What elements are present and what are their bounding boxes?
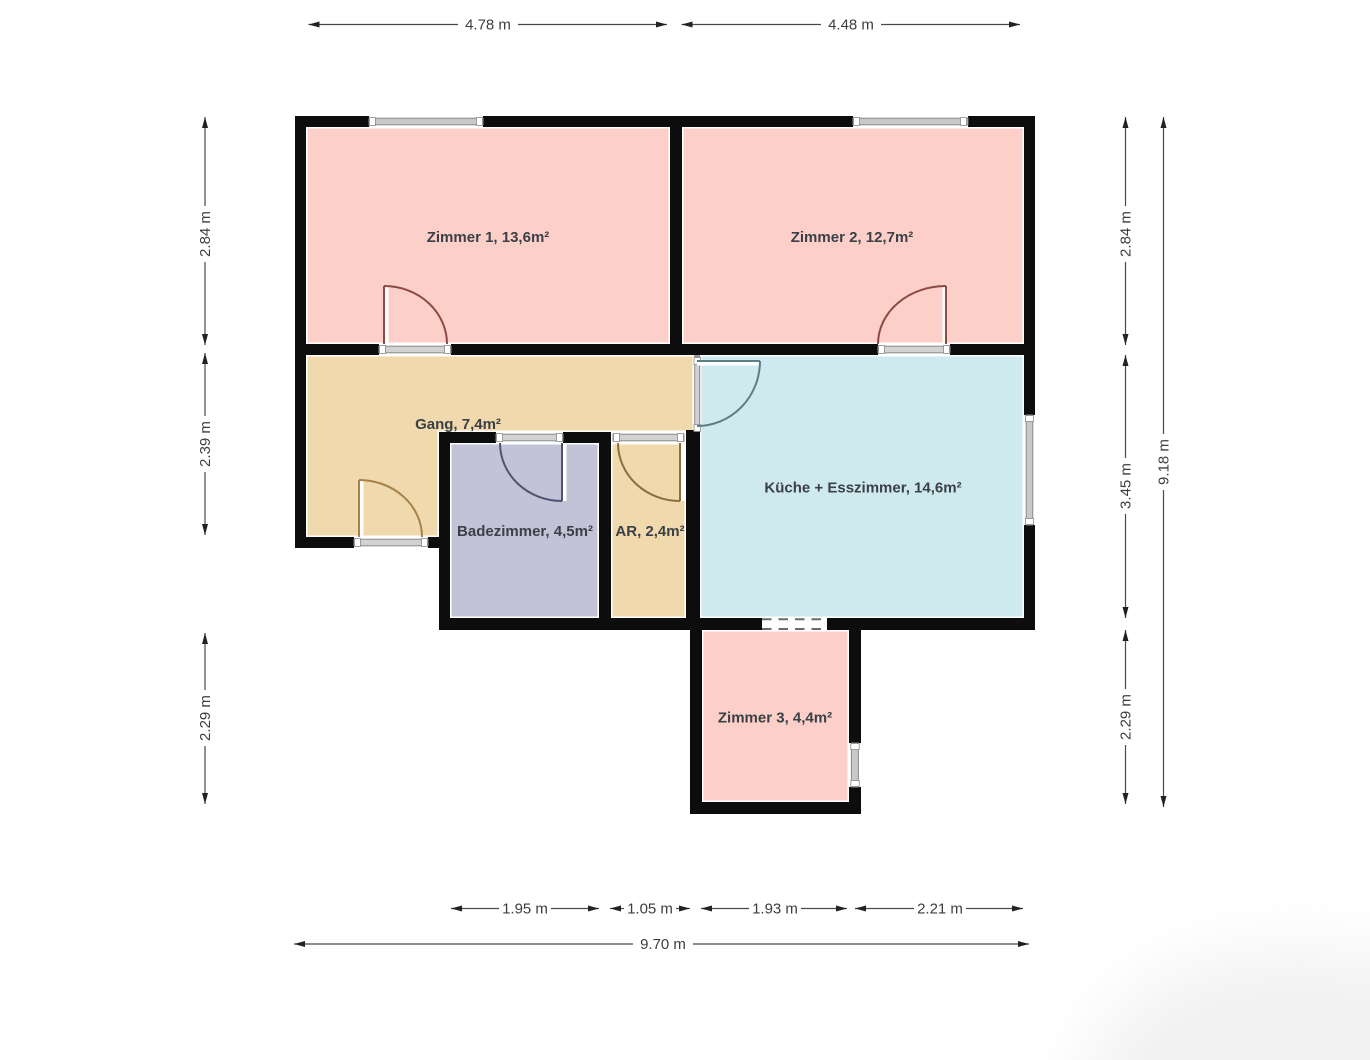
svg-text:1.93 m: 1.93 m	[752, 901, 798, 918]
svg-text:AR, 2,4m²: AR, 2,4m²	[615, 523, 684, 540]
svg-text:Zimmer 1, 13,6m²: Zimmer 1, 13,6m²	[427, 229, 550, 246]
svg-text:4.78 m: 4.78 m	[465, 17, 511, 34]
svg-text:Küche + Esszimmer, 14,6m²: Küche + Esszimmer, 14,6m²	[764, 480, 961, 497]
svg-text:Badezimmer, 4,5m²: Badezimmer, 4,5m²	[457, 523, 593, 540]
svg-text:3.45 m: 3.45 m	[1118, 463, 1135, 509]
svg-text:Zimmer 3, 4,4m²: Zimmer 3, 4,4m²	[718, 710, 832, 727]
svg-text:2.84 m: 2.84 m	[1118, 211, 1135, 257]
svg-text:9.70 m: 9.70 m	[640, 936, 686, 953]
svg-text:2.21 m: 2.21 m	[917, 901, 963, 918]
svg-text:2.84 m: 2.84 m	[197, 211, 214, 257]
svg-text:Zimmer 2, 12,7m²: Zimmer 2, 12,7m²	[791, 229, 914, 246]
svg-text:9.18 m: 9.18 m	[1156, 439, 1173, 485]
svg-text:2.39 m: 2.39 m	[197, 421, 214, 467]
svg-text:2.29 m: 2.29 m	[197, 695, 214, 741]
svg-text:4.48 m: 4.48 m	[828, 17, 874, 34]
svg-text:1.05 m: 1.05 m	[627, 901, 673, 918]
svg-text:2.29 m: 2.29 m	[1118, 694, 1135, 740]
svg-text:Gang, 7,4m²: Gang, 7,4m²	[415, 416, 501, 433]
svg-text:1.95 m: 1.95 m	[502, 901, 548, 918]
